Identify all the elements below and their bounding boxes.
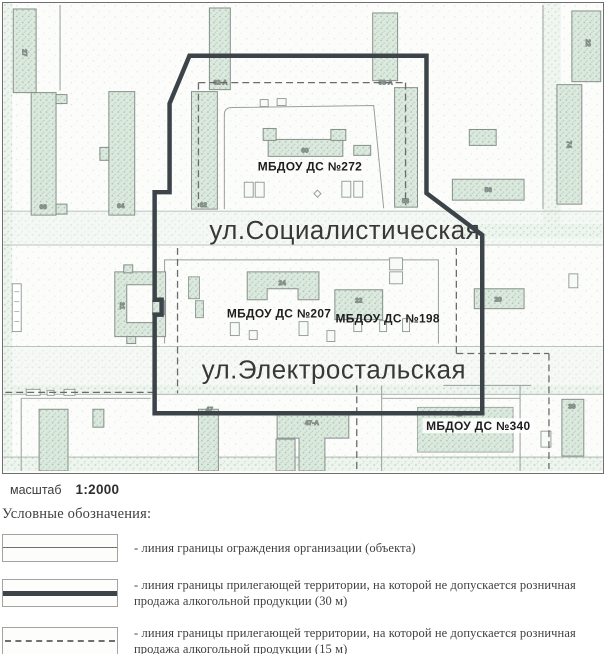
building-label: 56 xyxy=(485,187,493,194)
building-label: 64 xyxy=(117,203,125,210)
legend-swatch-fence-line xyxy=(2,534,118,562)
label-ds207: МБДОУ ДС №207 xyxy=(227,307,331,321)
building-label: 39 xyxy=(568,403,576,410)
legend-text-15m: - линия границы прилегающей территории, … xyxy=(134,625,602,654)
building-62a: 62-А xyxy=(209,8,230,90)
building-bottom-left xyxy=(39,409,68,471)
map-canvas: 27 66 64 62 xyxy=(3,3,603,471)
scale-value: 1:2000 xyxy=(76,482,120,497)
building-39: 39 xyxy=(562,399,584,456)
left-green-strip xyxy=(3,3,12,471)
label-ds340: МБДОУ ДС №340 xyxy=(426,419,530,433)
building-62: 62 xyxy=(191,92,217,210)
building-bottom-center xyxy=(198,409,218,471)
building-label: 20 xyxy=(495,297,503,304)
building-small-north xyxy=(469,129,496,145)
legend-item-15m: - линия границы прилегающей территории, … xyxy=(2,625,602,654)
street-name-elektrostalskaya: ул.Электростальская xyxy=(202,356,466,384)
scale-row: масштаб1:2000 xyxy=(10,482,119,497)
legend-swatch-15m-line xyxy=(2,627,118,654)
legend-swatch-30m-line xyxy=(2,579,118,607)
building-22-top-right: 22 xyxy=(572,11,601,82)
legend-item-fence: - линия границы ограждения организации (… xyxy=(2,534,602,562)
label-ds198: МБДОУ ДС №198 xyxy=(335,312,439,326)
territory-map: 27 66 64 62 xyxy=(2,2,604,474)
street-name-socialisticheskaya: ул.Социалистическая xyxy=(209,217,480,245)
building-label: 31 xyxy=(118,302,125,310)
fence-line-sample xyxy=(3,547,117,548)
building-58a: 58-А xyxy=(373,13,398,87)
building-label: 62 xyxy=(200,202,208,209)
building-74: 74 xyxy=(557,85,582,204)
building-label: 60 xyxy=(301,147,309,154)
building-56: 56 xyxy=(452,179,524,200)
legend-text-fence: - линия границы ограждения организации (… xyxy=(134,540,602,556)
building-label: 22 xyxy=(355,298,363,305)
boundary-30m-sample xyxy=(3,591,117,596)
building-27: 27 xyxy=(13,9,36,93)
legend-title: Условные обозначения: xyxy=(2,506,602,523)
building-label: 66 xyxy=(40,204,48,211)
building-bottom-center-2 xyxy=(276,439,295,471)
scale-label: масштаб xyxy=(10,483,62,497)
legend-item-30m: - линия границы прилегающей территории, … xyxy=(2,577,602,610)
building-label: 24 xyxy=(278,280,286,287)
illegible-vertical-label xyxy=(12,284,21,332)
building-label: 22 xyxy=(584,39,591,47)
building-label: 74 xyxy=(565,141,572,149)
legend-text-30m: - линия границы прилегающей территории, … xyxy=(134,577,602,610)
boundary-15m-sample xyxy=(5,640,115,642)
building-label: 27 xyxy=(21,49,28,57)
legend: Условные обозначения: - линия границы ог… xyxy=(2,506,602,654)
building-bottom-left-small xyxy=(93,409,104,427)
page: 27 66 64 62 xyxy=(0,0,606,654)
building-label: 47-А xyxy=(305,420,319,427)
label-ds272: МБДОУ ДС №272 xyxy=(258,159,362,173)
